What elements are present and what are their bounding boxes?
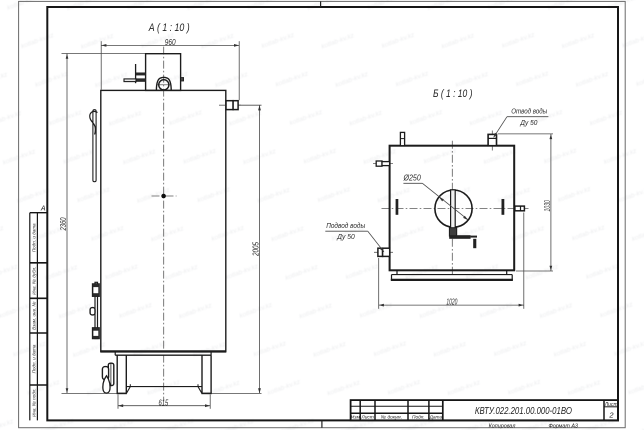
svg-text:Отвод воды: Отвод воды — [511, 107, 547, 116]
svg-text:960: 960 — [165, 37, 176, 47]
svg-text:Копировал: Копировал — [489, 424, 516, 430]
svg-text:2360: 2360 — [59, 217, 68, 231]
svg-text:Подп.: Подп. — [412, 415, 425, 421]
svg-text:А ( 1 : 10 ): А ( 1 : 10 ) — [148, 22, 190, 34]
svg-text:Взам. инв. №: Взам. инв. № — [32, 301, 37, 329]
svg-text:КВТУ.022.201.00.000-01ВО: КВТУ.022.201.00.000-01ВО — [475, 406, 572, 417]
svg-text:Лист: Лист — [360, 415, 373, 421]
svg-text:1030: 1030 — [543, 200, 552, 212]
svg-text:2005: 2005 — [251, 242, 260, 257]
svg-text:Ду 50: Ду 50 — [520, 118, 539, 127]
svg-text:Изм: Изм — [351, 415, 361, 421]
svg-text:Ду 50: Ду 50 — [336, 232, 355, 241]
svg-text:№ докум.: № докум. — [381, 415, 402, 421]
svg-text:Подвод воды: Подвод воды — [326, 221, 365, 230]
svg-text:Б ( 1 : 10 ): Б ( 1 : 10 ) — [433, 88, 473, 100]
svg-text:Инв. № дубл.: Инв. № дубл. — [32, 266, 37, 294]
svg-text:1020: 1020 — [446, 297, 457, 307]
svg-text:Лист: Лист — [604, 402, 618, 408]
svg-text:Ø250: Ø250 — [403, 174, 422, 183]
svg-text:2: 2 — [608, 411, 614, 420]
svg-text:Инв. № подл.: Инв. № подл. — [32, 388, 37, 417]
svg-text:615: 615 — [159, 397, 169, 407]
svg-text:Дата: Дата — [428, 415, 442, 421]
svg-text:Подп. и дата: Подп. и дата — [32, 344, 37, 373]
svg-text:Подп. и дата: Подп. и дата — [32, 223, 37, 252]
svg-text:А: А — [40, 205, 46, 212]
svg-text:Формат А3: Формат А3 — [548, 424, 578, 430]
